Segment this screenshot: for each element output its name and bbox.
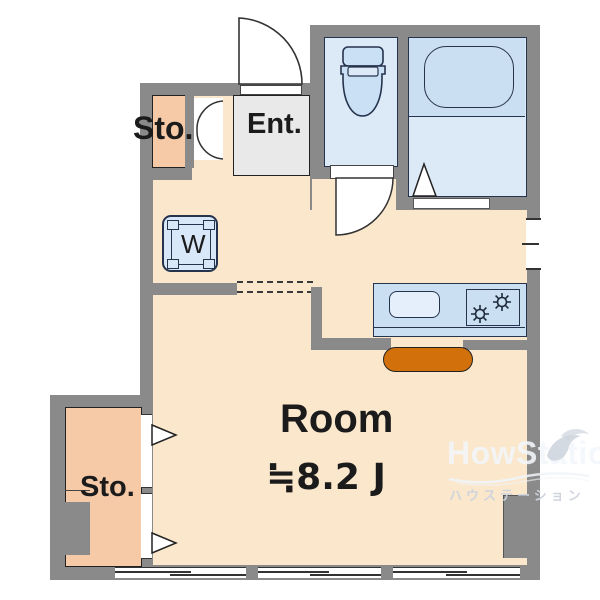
kitchen-wall-stub bbox=[140, 283, 237, 295]
washing-machine-icon: W bbox=[162, 215, 218, 272]
entrance-doorway bbox=[240, 85, 302, 95]
kitchen-partition-arm bbox=[311, 338, 391, 350]
kitchen-dashed-boundary-top bbox=[237, 281, 313, 283]
shower-door-triangle-icon bbox=[410, 162, 440, 198]
watermark: HowStation ハウステーション bbox=[445, 432, 600, 512]
kitchen-sink bbox=[389, 291, 440, 318]
right-window-tick bbox=[522, 243, 539, 245]
storage-bottom-left-wall bbox=[50, 395, 66, 580]
main-room-size: ≒8.2 J bbox=[266, 460, 386, 496]
window-sash-line bbox=[115, 571, 191, 573]
window-mullion-1 bbox=[246, 565, 258, 580]
kitchen-dashed-boundary-bottom bbox=[237, 291, 313, 293]
folding-door-icon bbox=[192, 97, 226, 163]
toilet-door-icon bbox=[334, 177, 398, 239]
washer-label: W bbox=[181, 231, 206, 257]
opening-arrow-upper-icon bbox=[150, 423, 178, 447]
floor-plan-canvas: Sto. Ent. W bbox=[0, 0, 600, 600]
window-sash-line bbox=[258, 571, 329, 573]
kitchen-underwall-right bbox=[463, 340, 540, 350]
bathroom-doorway bbox=[413, 198, 490, 209]
counter-front-line bbox=[374, 327, 525, 328]
main-room-label: Room bbox=[280, 399, 393, 439]
stove bbox=[466, 289, 520, 326]
stove-burners-icon bbox=[467, 290, 518, 324]
watermark-caption: ハウステーション bbox=[449, 485, 585, 504]
kitchen-mat bbox=[383, 347, 473, 372]
washer-tab-br bbox=[203, 259, 215, 269]
watermark-bird-icon bbox=[541, 426, 593, 470]
bathtub bbox=[424, 46, 514, 108]
storage-top-label: Sto. bbox=[133, 112, 193, 144]
window-sash-line bbox=[393, 571, 467, 573]
storage-step-block bbox=[65, 502, 90, 555]
storage-bottom-label: Sto. bbox=[80, 473, 135, 502]
bottom-window-2 bbox=[258, 567, 381, 578]
toilet-icon bbox=[336, 44, 390, 122]
window-mullion-2 bbox=[381, 565, 393, 580]
entrance-door-icon bbox=[236, 16, 306, 86]
watermark-swoosh-icon bbox=[447, 470, 592, 486]
opening-arrow-lower-icon bbox=[150, 531, 178, 555]
entrance-label: Ent. bbox=[247, 110, 302, 139]
washer-tab-tl bbox=[167, 220, 179, 230]
washer-tab-bl bbox=[167, 259, 179, 269]
bottom-window-1 bbox=[115, 567, 246, 578]
bottom-window-3 bbox=[393, 567, 520, 578]
storage-top-underwall bbox=[140, 168, 192, 180]
window-sash-line bbox=[170, 574, 246, 576]
window-sash-line bbox=[310, 574, 381, 576]
window-sash-line bbox=[446, 574, 520, 576]
